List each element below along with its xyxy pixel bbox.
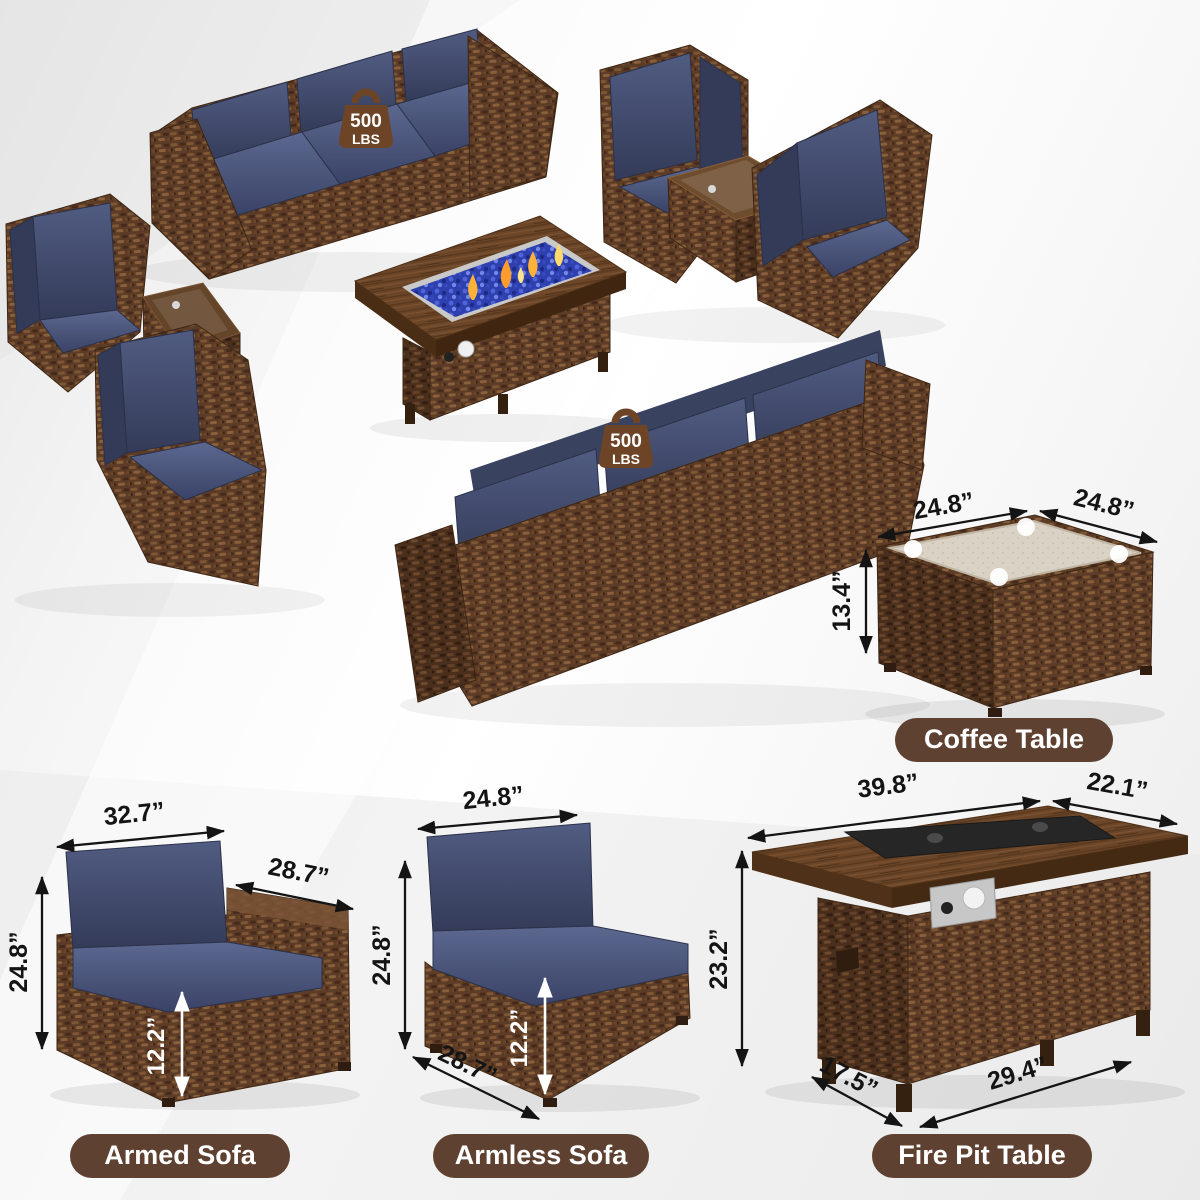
control-knob xyxy=(963,887,985,909)
coffee-table-label: Coffee Table xyxy=(924,724,1084,754)
dimension-label: 24.8” xyxy=(1071,483,1137,525)
dimension-label: 39.8” xyxy=(856,768,920,803)
back-cushion xyxy=(66,841,227,950)
back-cushion xyxy=(797,110,887,240)
armed-sofa-label: Armed Sofa xyxy=(104,1140,257,1170)
dimension-label: 13.4” xyxy=(828,570,856,631)
armless-sofa-label: Armless Sofa xyxy=(455,1140,629,1170)
product-infographic: 500 LBS xyxy=(0,0,1200,1200)
dimension-label: 22.1” xyxy=(1085,767,1150,805)
coffee-table-drawing xyxy=(877,515,1153,717)
dimension-label: 24.8” xyxy=(5,931,33,992)
product-infographic-page: 500 LBS xyxy=(0,0,1200,1200)
dimension-label: 12.2” xyxy=(506,1009,533,1068)
dimension-label: 12.2” xyxy=(143,1017,170,1076)
dimension-label: 24.8” xyxy=(911,487,976,525)
back-cushion xyxy=(33,203,117,320)
back-cushion xyxy=(427,823,593,933)
fire-pit-table-label: Fire Pit Table xyxy=(898,1140,1066,1170)
dimension-label: 23.2” xyxy=(705,928,733,989)
back-cushion xyxy=(120,330,200,453)
ignition-button xyxy=(941,902,953,914)
dimension-label: 24.8” xyxy=(368,924,396,985)
